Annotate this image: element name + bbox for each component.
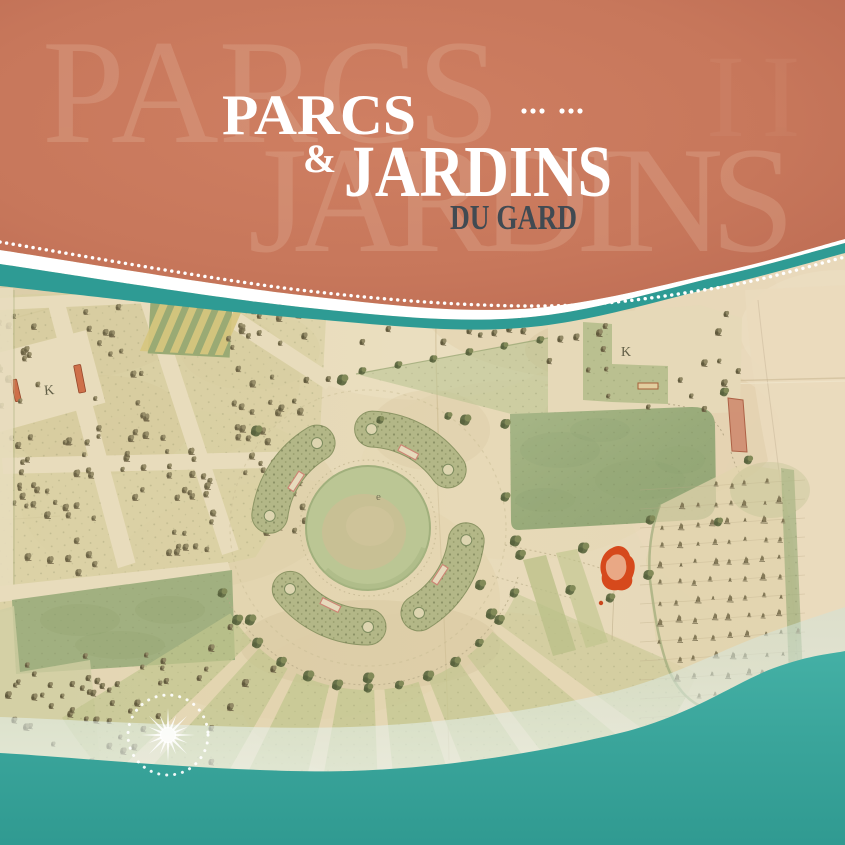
svg-text:&: & <box>303 136 336 181</box>
svg-text:DU GARD: DU GARD <box>450 198 577 237</box>
svg-text:II: II <box>706 31 817 162</box>
